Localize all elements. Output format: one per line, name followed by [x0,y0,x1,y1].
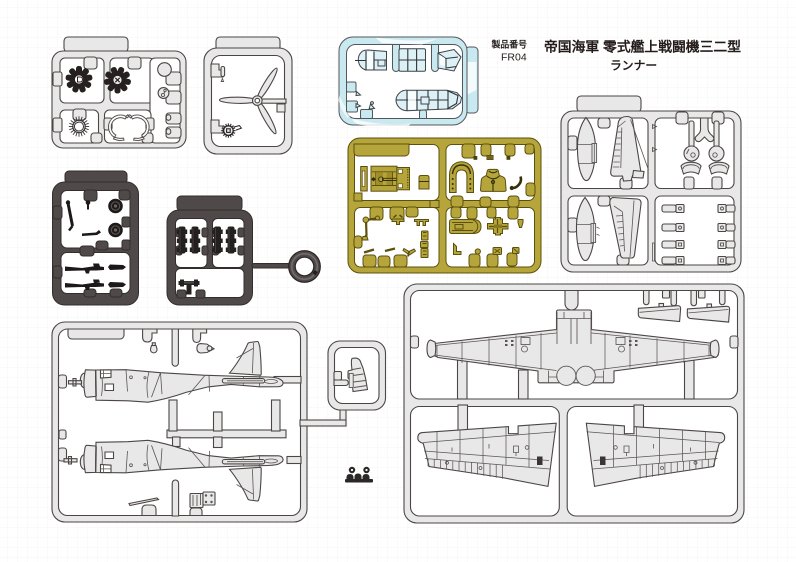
svg-text:帝国海軍 零式艦上戦闘機三二型: 帝国海軍 零式艦上戦闘機三二型 [544,39,741,55]
svg-text:FR04: FR04 [501,52,527,64]
svg-text:ランナー: ランナー [610,59,657,73]
svg-text:製品番号: 製品番号 [491,39,528,50]
